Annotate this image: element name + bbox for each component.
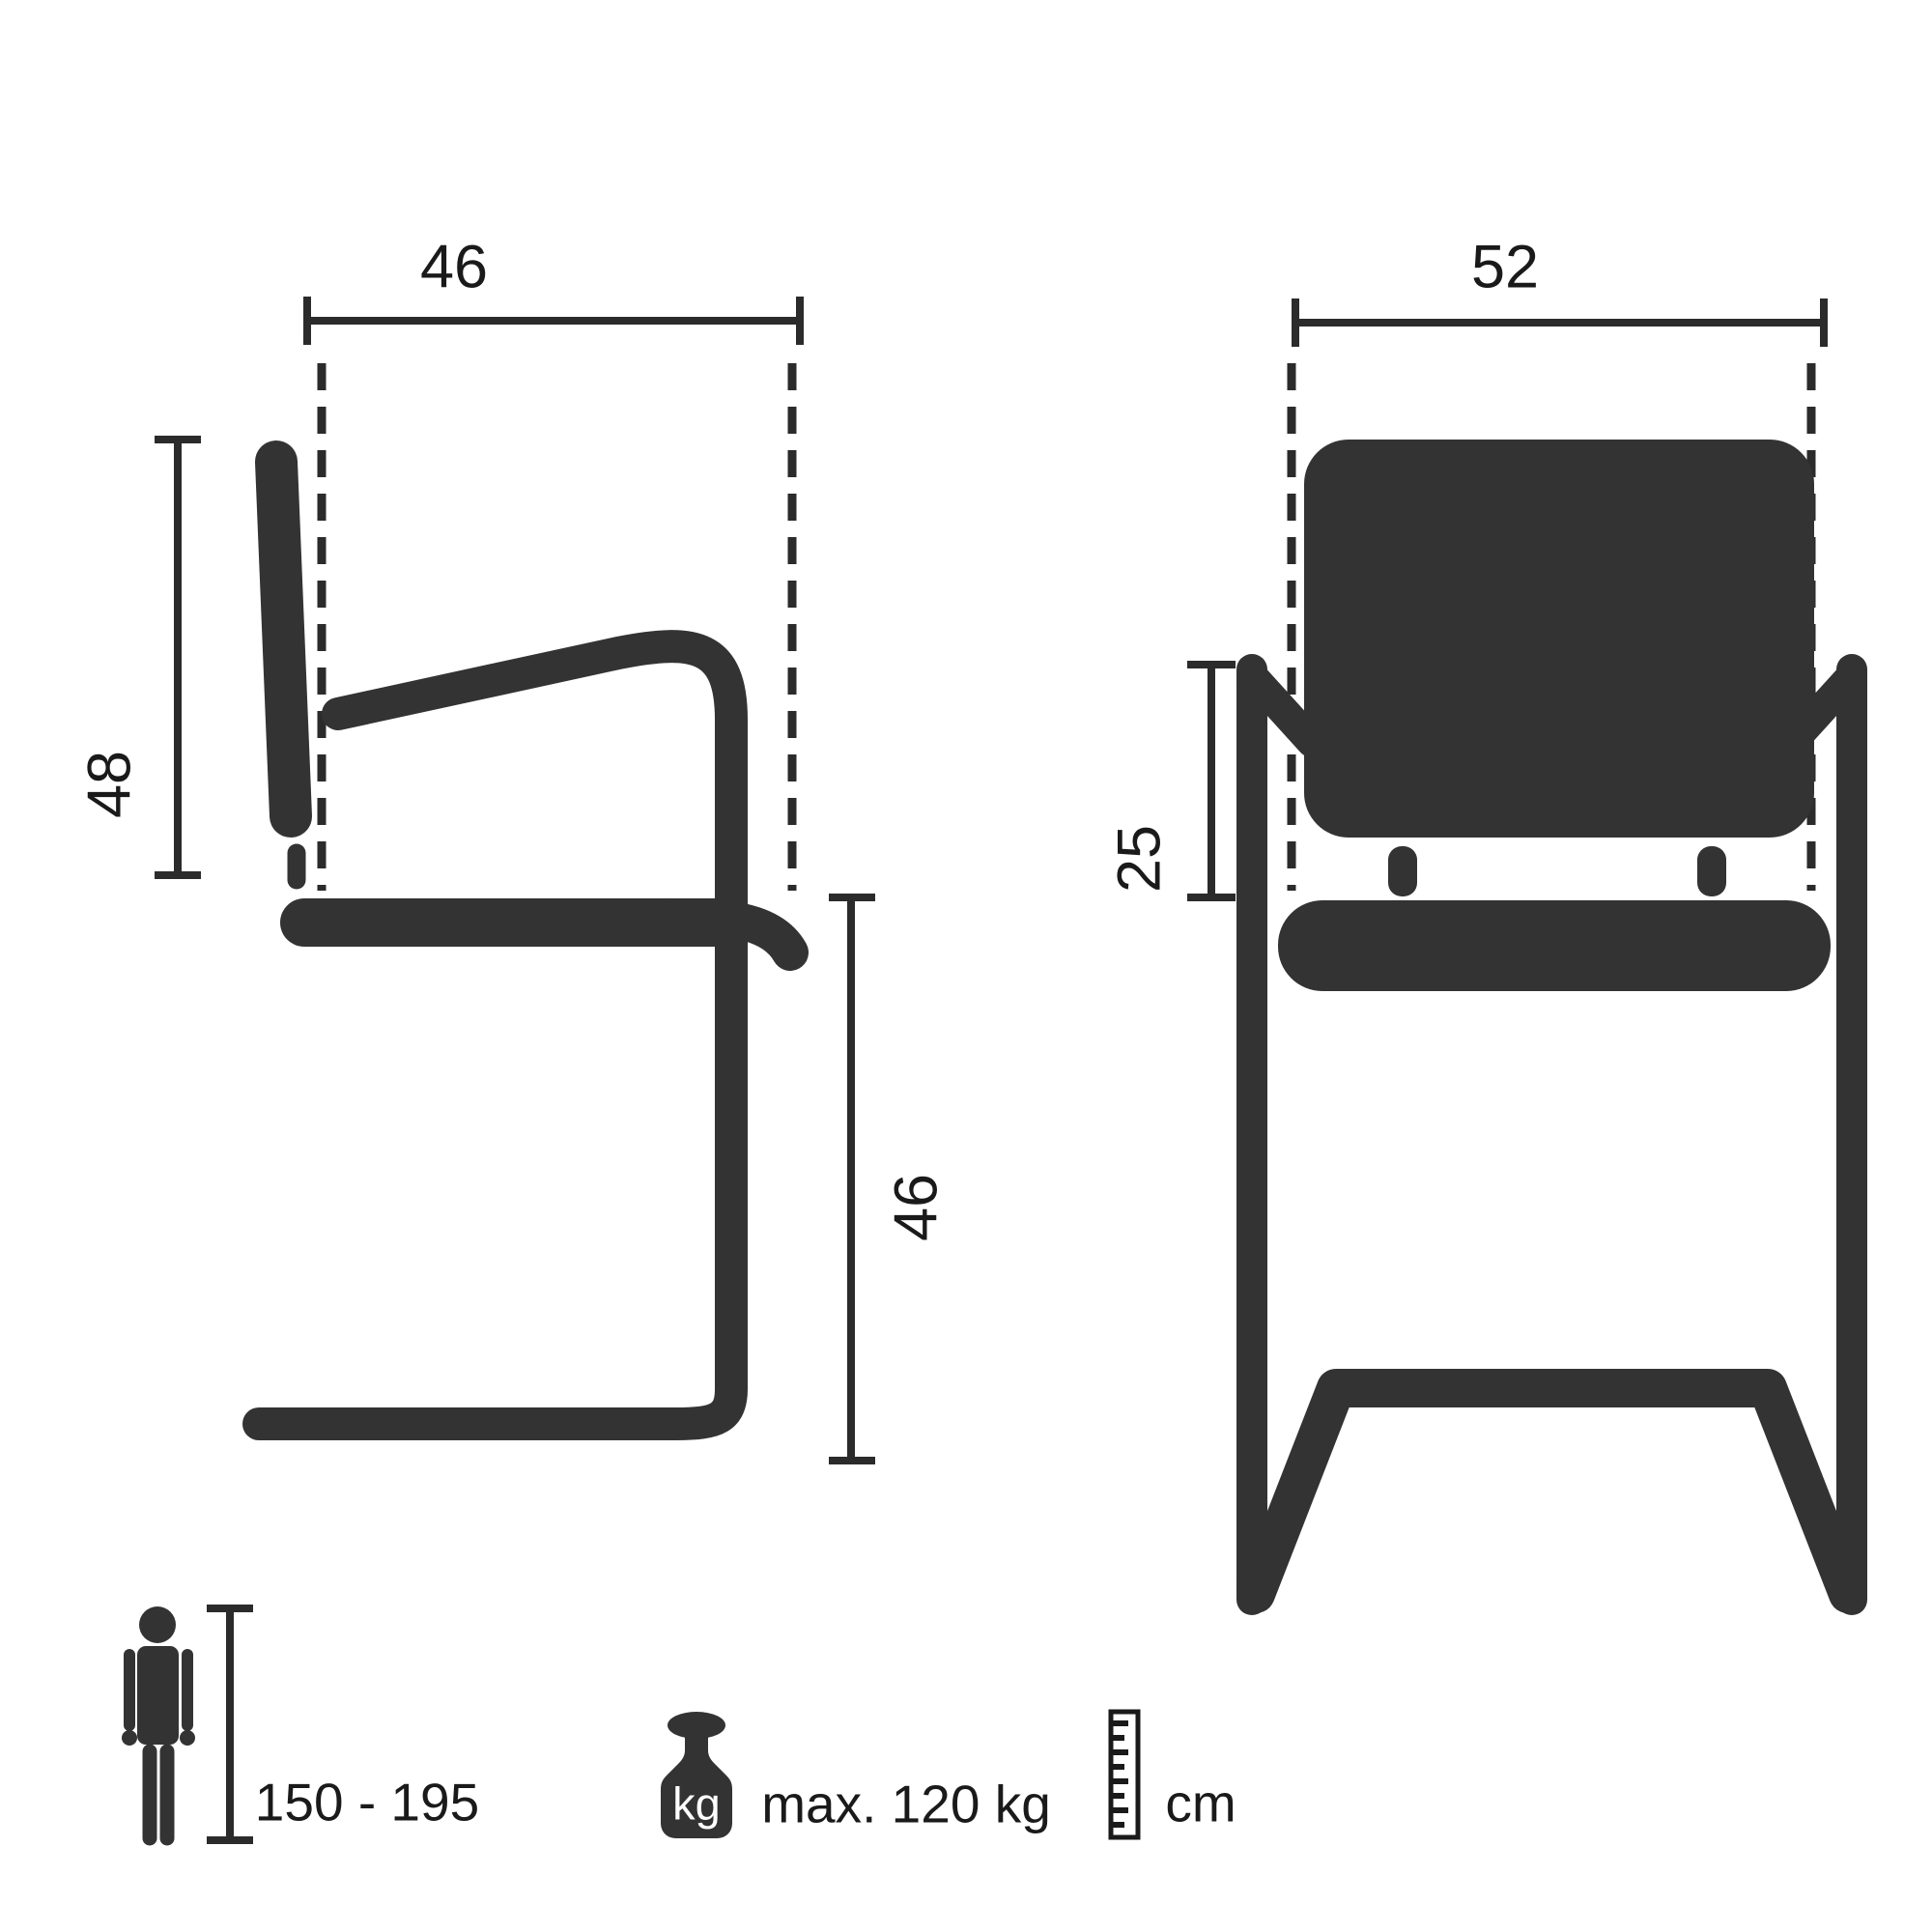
label-armrest-above-seat: 25	[1110, 825, 1171, 893]
label-side-top-width: 46	[420, 238, 488, 298]
front-armrest-height-dimension	[1187, 665, 1236, 897]
front-base-frame	[1256, 1388, 1848, 1594]
front-seat	[1278, 900, 1831, 991]
side-seat-height-dimension	[829, 897, 875, 1461]
front-top-width-dimension	[1295, 298, 1824, 347]
side-backrest-height-dimension	[155, 440, 201, 875]
front-right-seat-support	[1697, 846, 1726, 896]
label-backrest-height: 48	[80, 751, 141, 818]
person-icon	[122, 1606, 195, 1838]
label-body-height-range: 150 - 195	[255, 1776, 479, 1830]
person-height-dimension	[207, 1608, 253, 1840]
side-backrest	[276, 462, 291, 816]
front-chair-silhouette	[1252, 440, 1852, 1600]
side-top-width-dimension	[307, 297, 800, 345]
front-view	[1187, 298, 1852, 1600]
side-view	[155, 297, 875, 1461]
side-chair-silhouette	[259, 462, 790, 1424]
diagram-drawing	[0, 0, 1932, 1932]
chair-dimension-diagram: 46 48 46 52 25 150 - 195 kg max. 120 kg …	[0, 0, 1932, 1932]
label-seat-height: 46	[887, 1174, 948, 1241]
label-unit-cm: cm	[1165, 1777, 1236, 1831]
front-backrest	[1304, 440, 1814, 838]
label-front-top-width: 52	[1471, 238, 1539, 298]
side-frame	[259, 646, 731, 1424]
front-left-seat-support	[1388, 846, 1417, 896]
label-weight-unit-kg: kg	[672, 1781, 721, 1827]
ruler-icon	[1111, 1712, 1138, 1837]
label-max-load: max. 120 kg	[761, 1778, 1051, 1832]
